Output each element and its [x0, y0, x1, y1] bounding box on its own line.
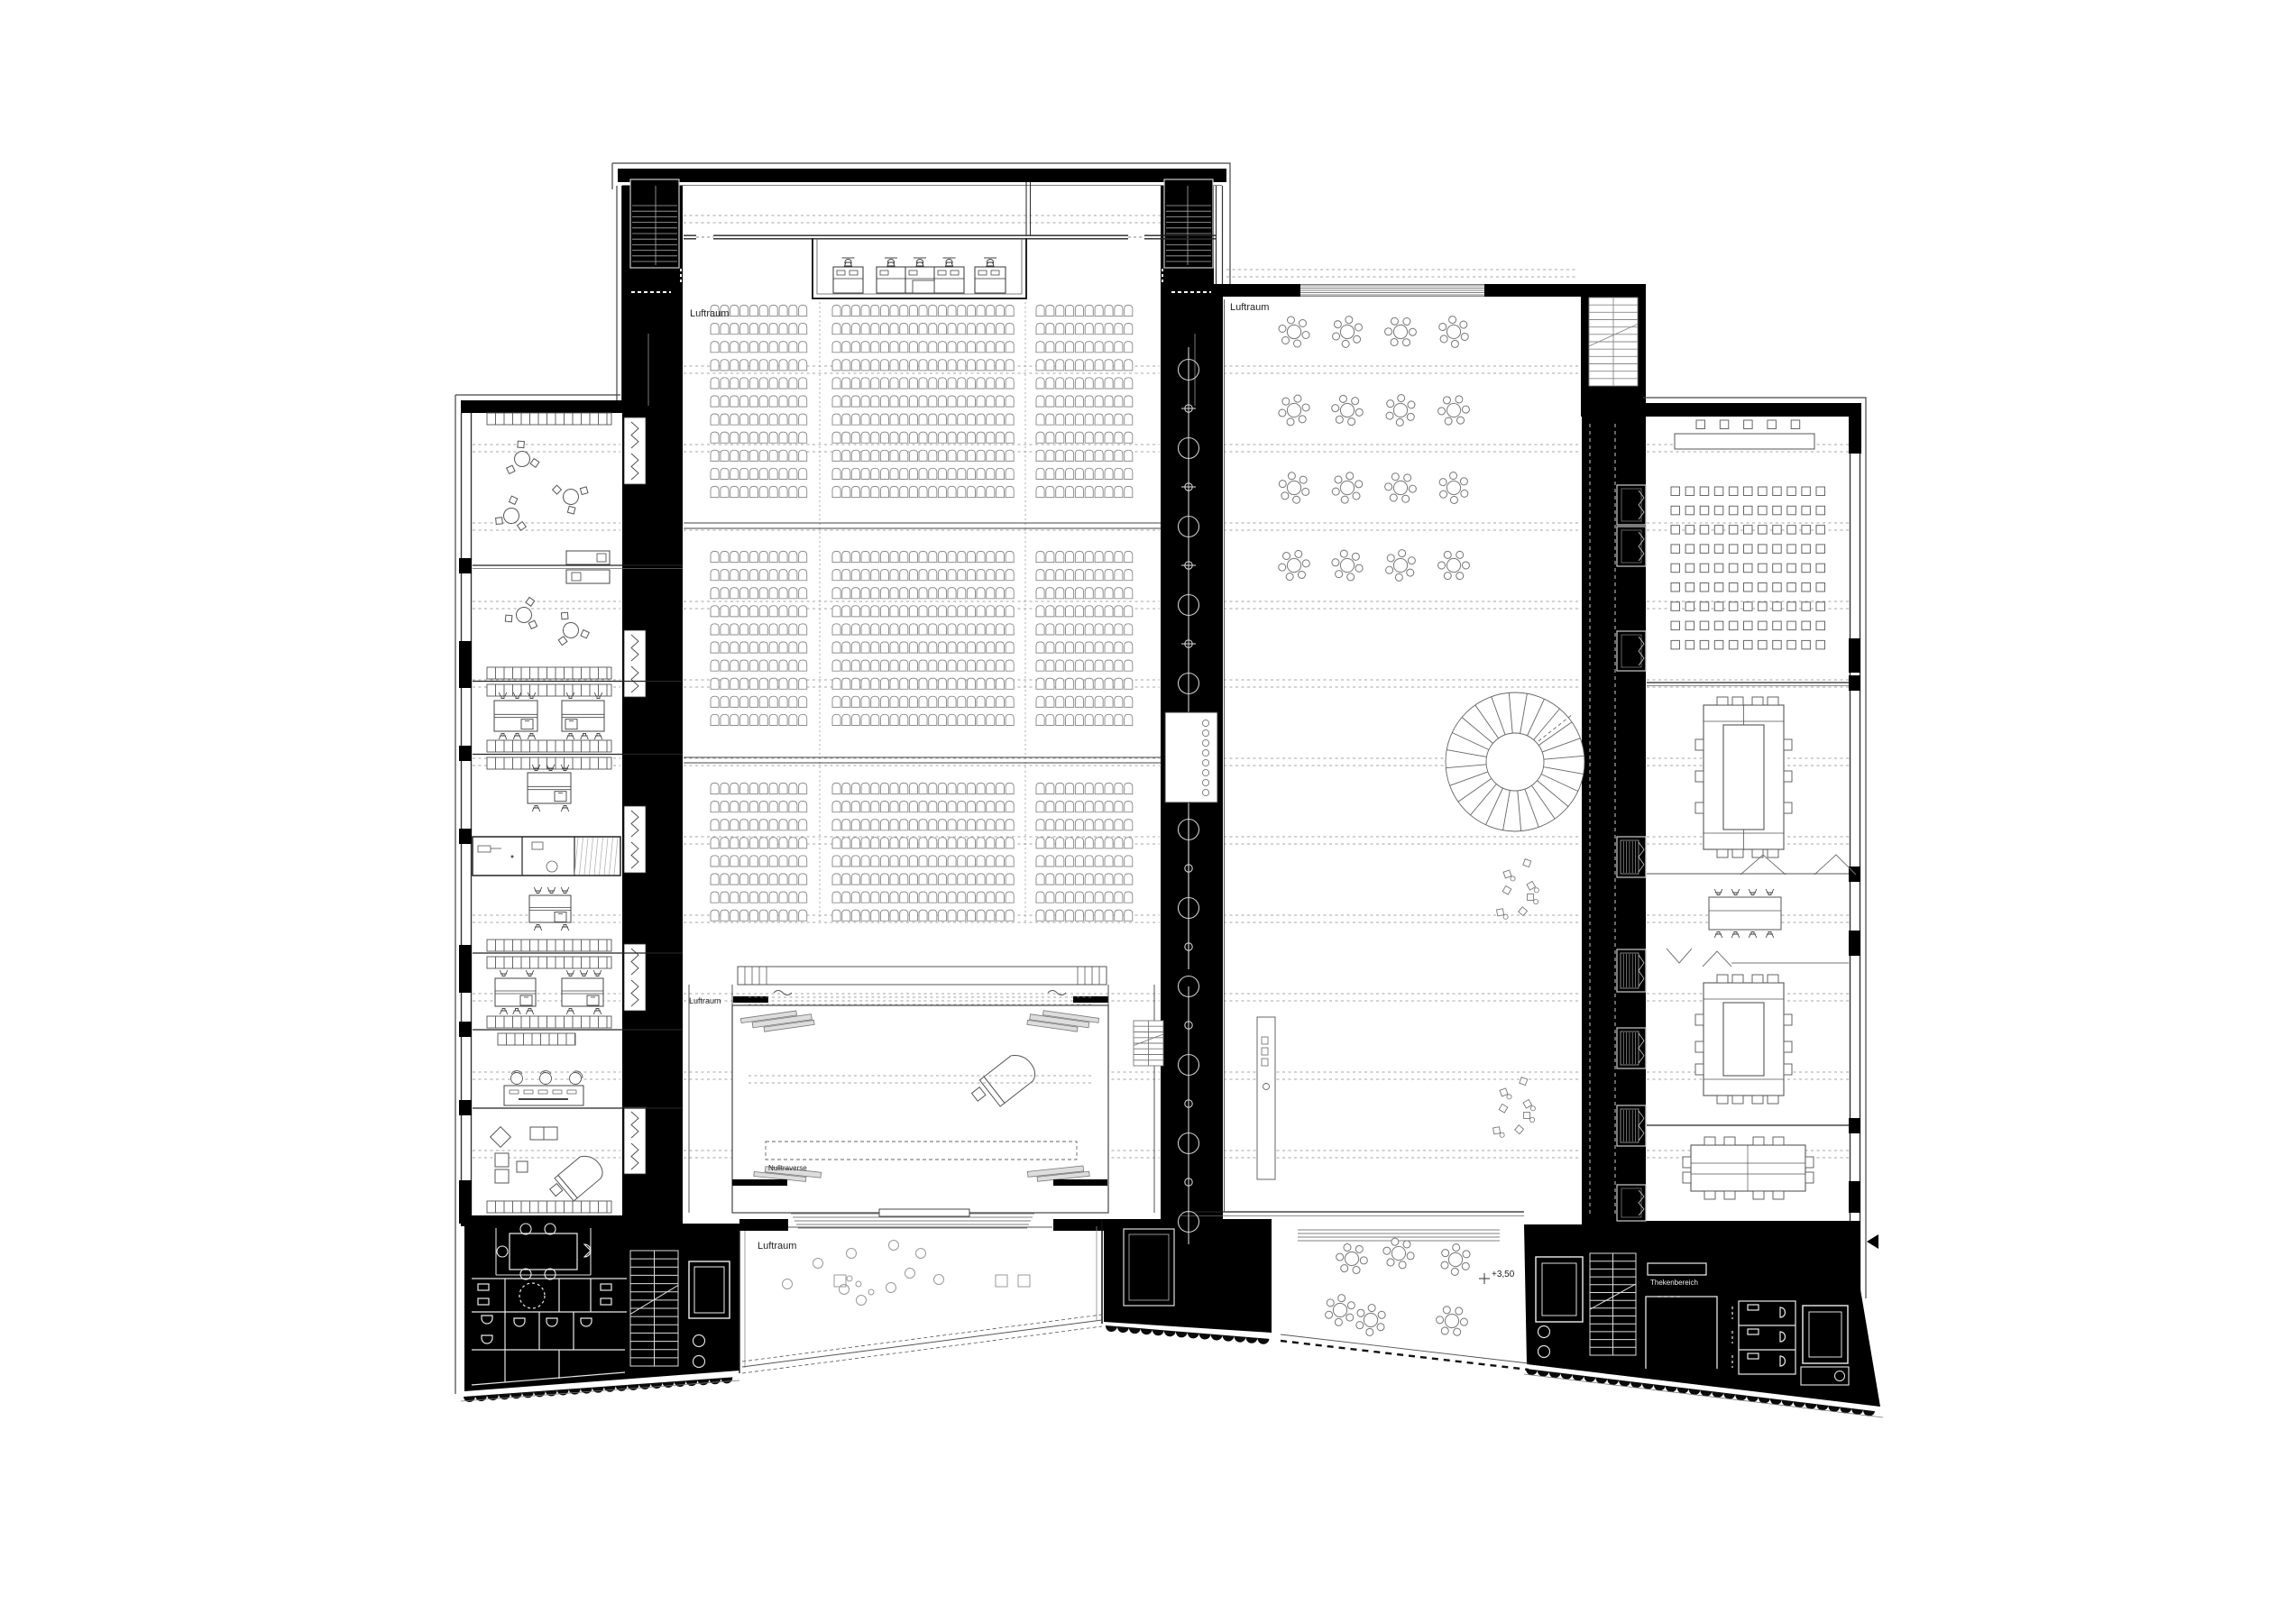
svg-text:Luftraum: Luftraum	[758, 1241, 796, 1252]
svg-text:Luftraum: Luftraum	[689, 996, 721, 1005]
svg-text:Nulltraverse: Nulltraverse	[768, 1164, 807, 1172]
svg-text:Luftraum: Luftraum	[1230, 302, 1269, 313]
svg-text:+3,50: +3,50	[1492, 1270, 1515, 1279]
svg-text:Luftraum: Luftraum	[690, 308, 729, 319]
svg-text:Thekenbereich: Thekenbereich	[1650, 1279, 1698, 1287]
